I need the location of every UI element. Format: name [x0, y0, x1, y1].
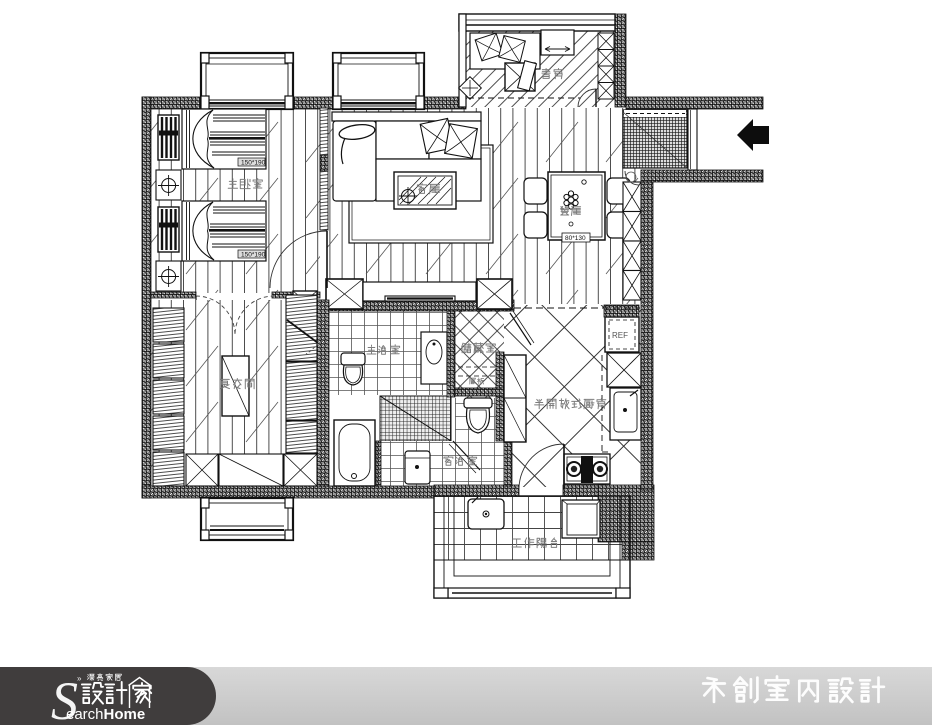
svg-text:REF: REF — [612, 331, 628, 340]
svg-text:»: » — [77, 674, 82, 683]
svg-text:150*190: 150*190 — [241, 160, 266, 167]
svg-text:80*130: 80*130 — [565, 235, 586, 242]
svg-text:150*190: 150*190 — [241, 252, 266, 259]
svg-text:earchHome: earchHome — [66, 706, 145, 723]
